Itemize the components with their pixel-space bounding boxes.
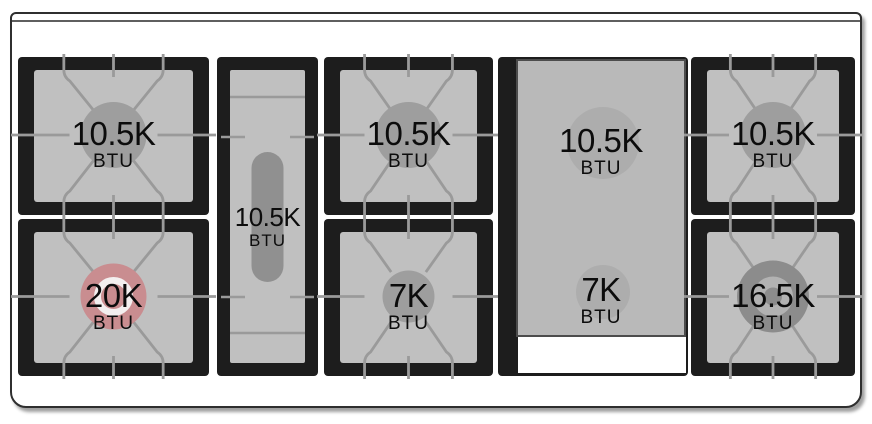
- burner-rear-left: 10.5K BTU: [18, 57, 209, 215]
- oval-burner-grate-icon: [217, 57, 318, 376]
- burner-grate-icon: [324, 219, 493, 376]
- burner-grate-icon: [18, 57, 209, 215]
- stove-frame-top-trim: [12, 20, 860, 22]
- range-cooktop-diagram: 10.5K BTU 20K BTU 10.5K BTU 10.5K BTU 7K…: [0, 0, 872, 424]
- burner-grate-icon: [18, 219, 209, 376]
- burner-grate-icon: [691, 219, 855, 376]
- griddle-lower-gap: [518, 337, 686, 373]
- griddle-front-burner-icon: [576, 265, 630, 319]
- burner-front-center-left: 7K BTU: [324, 219, 493, 376]
- griddle-plate: [516, 59, 686, 337]
- burner-rear-center-left: 10.5K BTU: [324, 57, 493, 215]
- burner-rear-right: 10.5K BTU: [691, 57, 855, 215]
- griddle-section: 10.5K BTU 7K BTU: [498, 57, 688, 376]
- griddle-rear-burner-icon: [567, 107, 639, 179]
- burner-grate-icon: [691, 57, 855, 215]
- burner-front-left: 20K BTU: [18, 219, 209, 376]
- burner-front-right: 16.5K BTU: [691, 219, 855, 376]
- burner-center-oval: 10.5K BTU: [217, 57, 318, 376]
- burner-grate-icon: [324, 57, 493, 215]
